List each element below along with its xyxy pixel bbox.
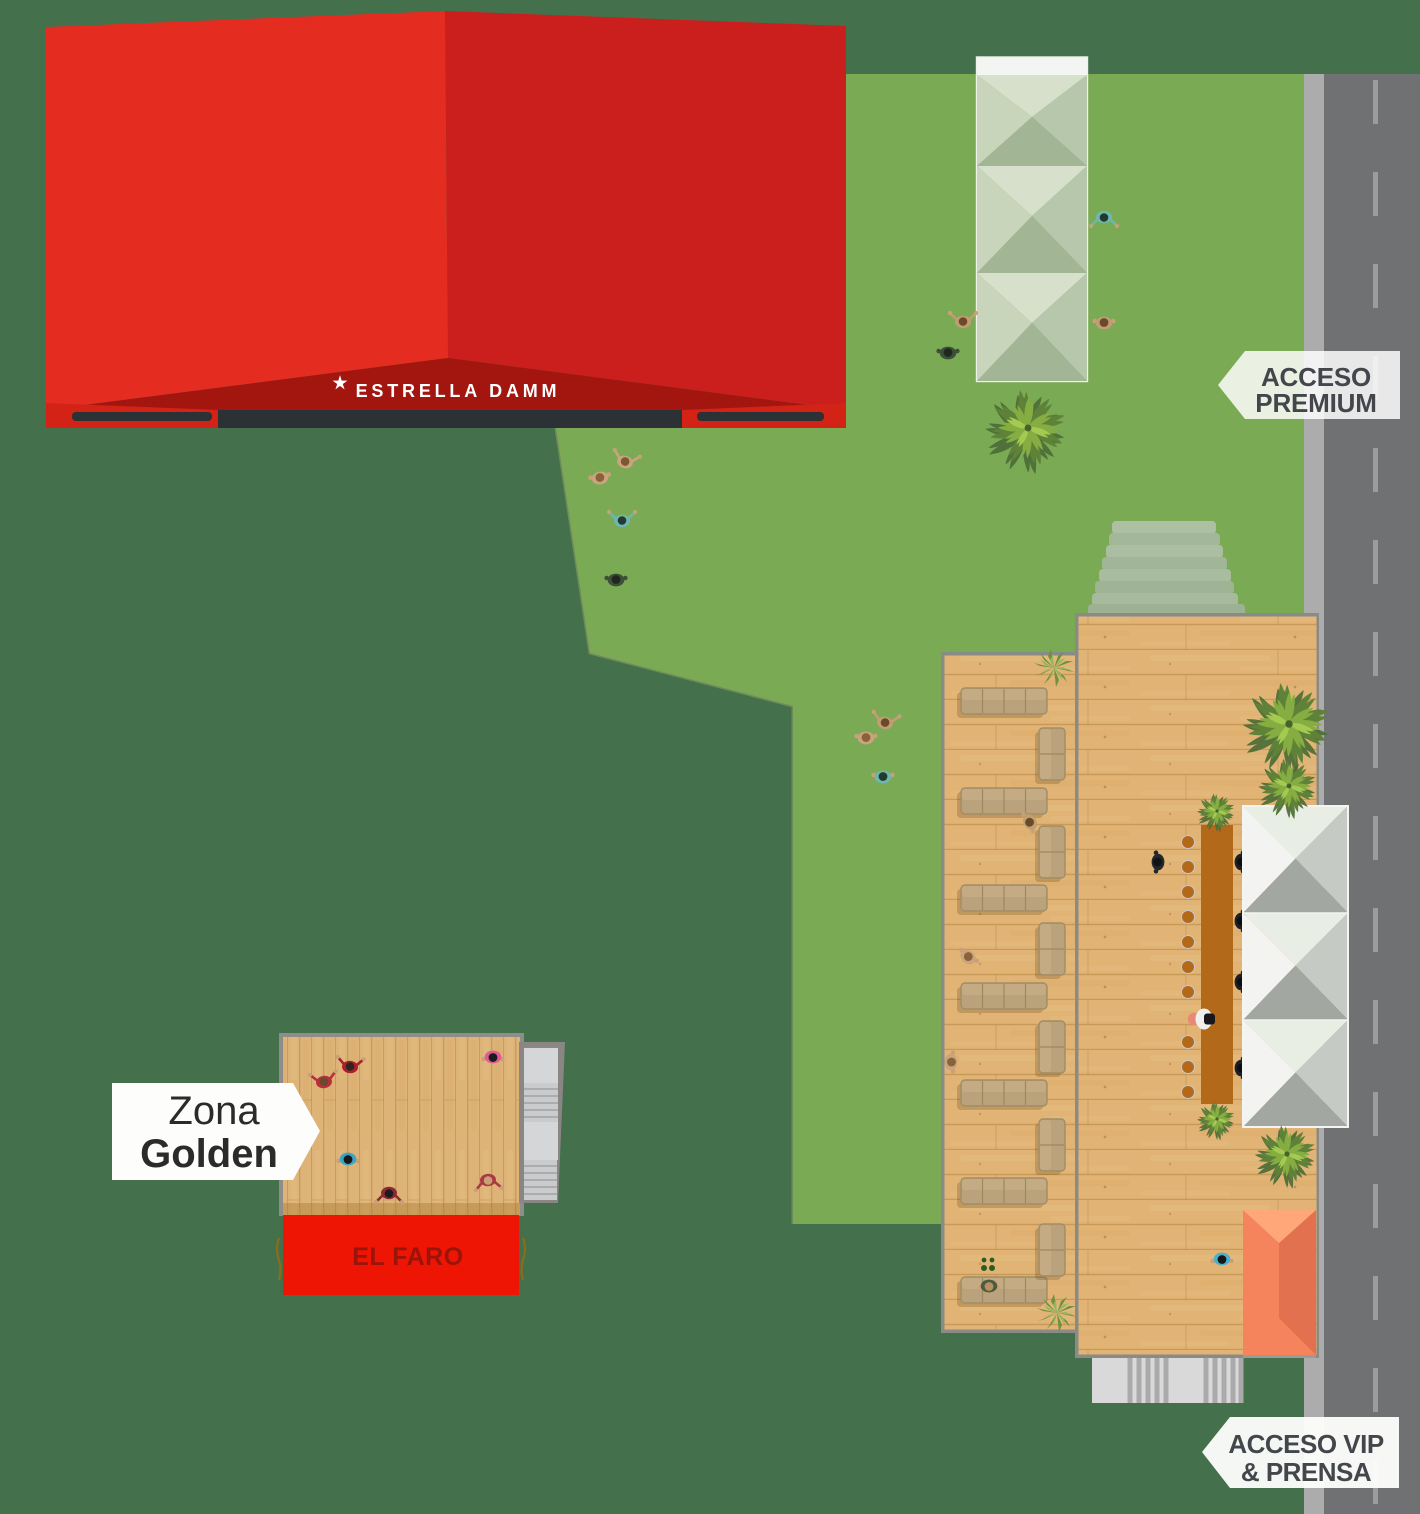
svg-text:ACCESO VIP: ACCESO VIP bbox=[1228, 1429, 1384, 1459]
svg-text:ESTRELLA DAMM: ESTRELLA DAMM bbox=[356, 381, 561, 401]
svg-text:Golden: Golden bbox=[140, 1132, 278, 1176]
svg-text:PREMIUM: PREMIUM bbox=[1255, 388, 1376, 418]
svg-text:EL FARO: EL FARO bbox=[352, 1243, 463, 1271]
svg-text:& PRENSA: & PRENSA bbox=[1241, 1457, 1372, 1487]
svg-text:Zona: Zona bbox=[168, 1089, 260, 1133]
